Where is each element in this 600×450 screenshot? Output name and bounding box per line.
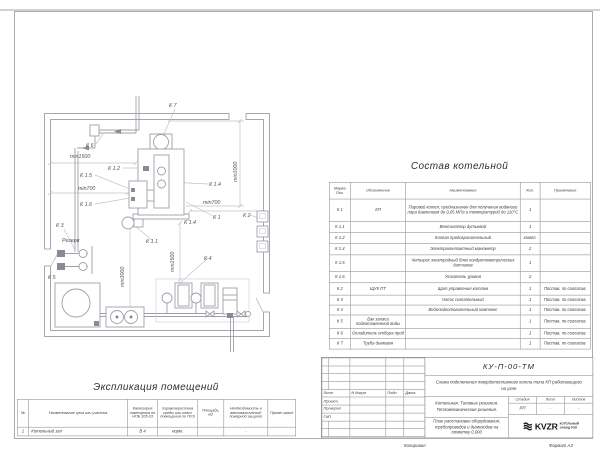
safety-valve-k12 xyxy=(143,166,149,171)
footer-format: Формат А3 xyxy=(549,444,573,448)
comp-row: К 1.2Клапан предохранительныйкомпл. xyxy=(329,233,590,244)
comp-row: К 1КППаровой котел, предназначен для пол… xyxy=(329,199,590,221)
label-dim-min3000: min3000 xyxy=(120,267,126,287)
val-sheet: - xyxy=(536,404,564,415)
footer-copied: Копировал xyxy=(404,444,426,448)
object-line2: Тепломеханические решения. xyxy=(436,407,497,413)
grid-row xyxy=(322,366,425,374)
label-k5: К 5 xyxy=(48,275,56,281)
company-name: КОТЕЛЬНЫЙ ЗАВОД РЭП xyxy=(560,423,579,430)
explication-title: Экспликация помещений xyxy=(17,382,295,393)
role-row: Проверил xyxy=(322,405,425,413)
composition-table: Марка Поз.ОбозначениеНаименованиеКол.При… xyxy=(329,182,591,349)
comp-header-row: Марка Поз.ОбозначениеНаименованиеКол.При… xyxy=(329,182,590,199)
label-k7: К 7 xyxy=(169,103,178,109)
comp-row: К 3Насос питательный1Постав. по согласов… xyxy=(329,295,590,305)
gauge-a xyxy=(162,293,172,303)
label-dim-min700-left: min700 xyxy=(78,186,95,192)
grid-row xyxy=(322,358,425,366)
title-block-wrap: ЛистN докумПодп.Дата Проект. Проверил ГИ… xyxy=(321,357,593,438)
label-k14-a: К 1.4 xyxy=(209,182,221,188)
doc-subtitle: Схема подключения твердотопливного котла… xyxy=(425,376,593,397)
grid-row xyxy=(322,429,425,437)
dosing-unit xyxy=(223,288,237,314)
composition-title: Состав котельной xyxy=(329,161,590,172)
expl-row: 1Котельный залВ 4норм.- xyxy=(17,427,295,436)
label-k3: К 3 xyxy=(56,223,64,229)
comp-row: К 1.1Вентилятор дутьевой1 xyxy=(329,221,590,232)
val-sheets: - xyxy=(564,404,593,415)
col-stage: Стадия xyxy=(508,397,536,404)
role-row: Проект. xyxy=(322,397,425,405)
label-k16: К 1.6 xyxy=(80,202,92,208)
comp-row: К 1.5Четырех электродный блок кондуктоме… xyxy=(329,255,590,272)
role-row: ГИП xyxy=(322,413,425,421)
explication-table: №Наименование цеха или участкаКатегория … xyxy=(17,399,296,436)
label-reserve: Резерв xyxy=(62,238,80,244)
comp-row: К 1.4Электроконтактный манометр2 xyxy=(329,244,590,255)
fan-k11 xyxy=(134,219,143,227)
signature-table: ЛистN докумПодп.Дата Проект. Проверил ГИ… xyxy=(322,358,426,437)
explication-table-wrap: №Наименование цеха или участкаКатегория … xyxy=(17,399,296,436)
grid-row xyxy=(322,421,425,429)
footer-left-wrap: Копировал xyxy=(404,439,426,450)
label-k12: К 1.2 xyxy=(108,166,120,172)
footer-right-wrap: Формат А3 xyxy=(549,439,573,450)
sensor-block-k15 xyxy=(129,181,147,208)
gauge-b xyxy=(191,293,201,303)
label-k1: К 1 xyxy=(213,215,221,221)
comp-row: К 4Водоподготовительный комплекс1Постав.… xyxy=(329,305,590,315)
comp-row: К 1.6Указатель уровня2 xyxy=(329,272,590,283)
comp-row: К 5Бак запаса подготовленной воды1Постав… xyxy=(329,315,590,329)
sample-cooler-k6 xyxy=(90,125,99,136)
label-dim-min1500-center: min1500 xyxy=(170,252,176,272)
sign-header-row: ЛистN докумПодп.Дата xyxy=(322,389,425,397)
fan-k11-wheel xyxy=(122,217,134,229)
chimney-k7 xyxy=(154,135,169,150)
logo-cell: KVZR КОТЕЛЬНЫЙ ЗАВОД РЭП xyxy=(508,415,592,438)
label-k4: К 4 xyxy=(204,256,212,262)
object-name: Котельная. Типовые решения. Тепломеханич… xyxy=(425,397,509,418)
pump-k3-b xyxy=(57,263,65,270)
label-k11: К 1.1 xyxy=(146,239,158,245)
composition-table-wrap: Марка Поз.ОбозначениеНаименованиеКол.При… xyxy=(329,182,591,349)
doc-code: КУ-П-00-ТМ xyxy=(425,358,593,376)
label-k15: К 1.5 xyxy=(80,173,92,179)
panel-k2-c xyxy=(257,241,268,252)
logo-text: KVZR xyxy=(535,421,558,431)
panel-k2-b xyxy=(257,226,268,237)
expl-header-row: №Наименование цеха или участкаКатегория … xyxy=(17,399,295,427)
col-sheets: Листов xyxy=(564,397,593,404)
col-sheet: Лист xyxy=(536,397,564,404)
grid-row xyxy=(322,374,425,382)
title-block: ЛистN докумПодп.Дата Проект. Проверил ГИ… xyxy=(321,357,593,438)
sheet-name: План расстановки оборудования, трубопров… xyxy=(425,418,509,438)
company-line2: ЗАВОД РЭП xyxy=(560,426,578,429)
grid-row xyxy=(322,382,425,390)
comp-row: К 2ЩУК ПТЩит управления котлом1Постав. п… xyxy=(329,283,590,295)
label-dim-min1000: min1000 xyxy=(233,162,239,182)
comp-row: К 6Охладитель отбора проб1Постав. по сог… xyxy=(329,329,590,339)
label-k14-b: К 1.4 xyxy=(184,220,196,226)
val-stage: РП xyxy=(508,404,536,415)
label-dim-min1500-left: min1500 xyxy=(70,154,90,160)
coil-icon xyxy=(522,422,533,431)
label-dim-min700-right: min700 xyxy=(203,200,220,206)
panel-k2-a xyxy=(257,211,268,222)
label-k6: К 6 xyxy=(86,143,94,149)
label-k2: К 2 xyxy=(243,213,251,219)
pump-k3-a xyxy=(57,250,65,257)
comp-row: К 7Труба дымовая1Постав. по согласов. xyxy=(329,339,590,350)
